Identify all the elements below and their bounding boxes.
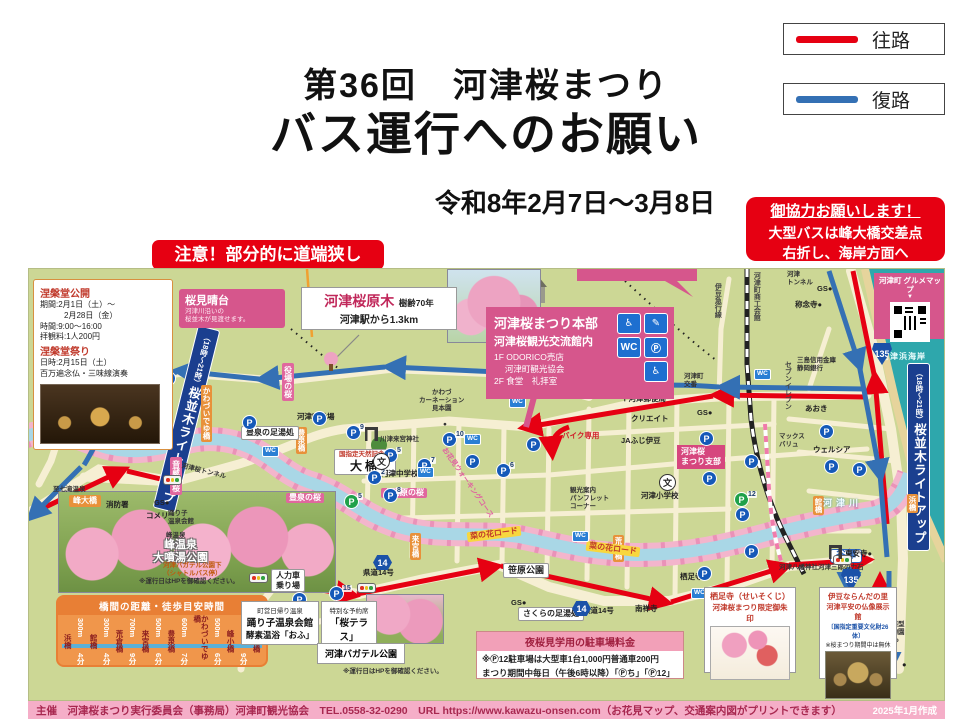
cooperation-notice-line3: 右折し、海岸方面へ (746, 243, 945, 263)
terrace-line1: 特別な予約席 (326, 605, 372, 615)
naranda-box: 伊豆ならんだの里 河津平安の仏像展示館 〔国指定重要文化財26体〕 ※桜まつり期… (819, 587, 897, 679)
nehando-info-box: 涅槃堂公開 期間:2月1日（土）～ 2月28日（金） 時間:9:00～16:00… (33, 279, 173, 450)
odoriko-onsen-box: 町営日帰り温泉 踊り子温泉会館 酵素温浴「おふ」 (241, 601, 319, 645)
map-label: （18時～21時）桜並木ライトアップ (907, 363, 930, 551)
map-label: ウェルシア (813, 445, 851, 454)
seisokuji-line2: 河津桜まつり限定御朱印 (709, 602, 791, 624)
map-label: 南禅寺 (635, 604, 658, 613)
map-label: GS● (154, 498, 169, 507)
map-label: GS● (511, 598, 526, 607)
narrow-road-notice: 注意！部分的に道端狭し (152, 240, 384, 270)
parking-marker: P (819, 424, 834, 439)
map-label: 河津 トンネル (787, 271, 813, 287)
toilet-marker: WC (262, 446, 279, 457)
clipped-callout (577, 269, 697, 297)
terrace-line2: 「桜テラス」 (326, 615, 372, 643)
nehando-open-body: 期間:2月1日（土）～ 2月28日（金） 時間:9:00～16:00 拝観料:1… (40, 300, 166, 343)
map-label: 豊泉の桜 (286, 493, 324, 503)
traffic-light-icon (249, 573, 268, 583)
fee-box-line1: ※Ⓟ12駐車場は大型車1台1,000円普通車200円 (477, 651, 683, 665)
bridge-table-cell: 峰小橋 (227, 615, 235, 667)
bridge-table-cell: 300m4分 (103, 615, 111, 667)
bridge-table-cell: 300m4分 (77, 615, 85, 667)
parking-marker: P (699, 431, 714, 446)
map-label: 来宮橋 (410, 533, 421, 560)
naranda-line2: 河津平安の仏像展示館 (824, 602, 892, 622)
traffic-light-icon (163, 475, 182, 485)
genboku-name: 河津桜原木 (324, 293, 394, 309)
map-label: ※運行日はHPを御確認ください。 (343, 668, 443, 676)
parking-marker: P15 (329, 586, 344, 601)
facility-icon: ♿ (617, 313, 641, 334)
facility-icon: Ⓟ (644, 337, 668, 358)
night-parking-fee-box: 夜桜見学用の駐車場料金 ※Ⓟ12駐車場は大型車1台1,000円普通車200円 ま… (476, 631, 684, 679)
parking-marker: P2 (367, 470, 382, 485)
map-label: 消防署 (106, 500, 129, 509)
map-label: ● (443, 421, 447, 429)
naranda-line1: 伊豆ならんだの里 (824, 591, 892, 602)
map-label: ● (902, 660, 907, 669)
nehando-open-title: 涅槃堂公開 (40, 285, 166, 300)
map-label: 笹原公園 (503, 563, 549, 578)
parking-marker: P10 (442, 432, 457, 447)
map-label: 河津バガテル公園下 （シャトルバス停） (163, 562, 222, 578)
bridge-table-cell: 浜橋 (64, 615, 72, 667)
toilet-marker: WC (417, 467, 434, 478)
map-label: バイク専用 (562, 431, 599, 440)
parking-marker: P12 (734, 492, 749, 507)
organizer-credit: 主催 河津桜まつり実行委員会（事務局）河津町観光協会 TEL.0558-32-0… (36, 703, 842, 718)
map-label: 踊り子 温泉会館 (168, 510, 194, 526)
bridge-table-cell: 来宮橋 (141, 615, 149, 667)
legend-return-label: 復路 (872, 86, 910, 113)
map-label: かわづいでゆ橋 (201, 385, 212, 442)
nehando-festival-title: 涅槃堂祭り (40, 343, 166, 358)
traffic-light-icon (357, 583, 376, 593)
cooperation-notice-line2: 大型バスは峰大橋交差点 (746, 223, 945, 243)
parking-marker: P (702, 471, 717, 486)
odoriko-line3: 酵素温浴「おふ」 (246, 629, 314, 641)
map-label: 峰大橋 (69, 495, 101, 507)
bridge-table-cell: かわづいでゆ橋 (193, 615, 208, 667)
genboku-sub: 河津駅から1.3km (306, 311, 452, 326)
toilet-marker: WC (754, 369, 771, 380)
facility-icon: ✎ (644, 313, 668, 334)
bagatel-park-label: 河津バガテル公園 (317, 643, 405, 664)
parking-marker: P6 (496, 463, 511, 478)
map-label: 浜橋 (907, 494, 918, 513)
miharashi-sub: 河津川沿いの 桜並木が見渡せます。 (185, 308, 279, 325)
cooperation-notice-line1: 御協力お願いします！ (746, 201, 945, 223)
odoriko-line1: 町営日帰り温泉 (246, 605, 314, 615)
bridge-table-cells: 浜橋 300m4分 館橋 300m4分 荒倉橋 700m9分 来宮橋 500m (58, 615, 266, 667)
bridge-table-cell: 館橋 (90, 615, 98, 667)
bridge-table-cell: 500m6分 (214, 615, 222, 667)
facility-icon: WC (617, 337, 641, 358)
map-label: GS● (817, 284, 832, 293)
seisokuji-line1: 栖足寺（せいそくじ） (709, 591, 791, 602)
map-label: 至七滝温泉 (53, 486, 86, 494)
gourmet-map-title: 河津町 グルメマップ (877, 276, 943, 295)
map-label: コメリ (146, 511, 169, 520)
return-line-icon (796, 96, 858, 103)
parking-marker: P (312, 411, 327, 426)
toilet-marker: WC (464, 434, 481, 445)
map-label: 役場の桜 (282, 363, 294, 401)
map-label: 河津町商工会館 (752, 272, 760, 321)
festival-period: 令和8年2月7日～3月8日 (340, 183, 810, 220)
odoriko-line2: 踊り子温泉会館 (246, 615, 314, 629)
torii-icon (829, 545, 842, 559)
genboku-box: 河津桜原木 樹齢70年 河津駅から1.3km (301, 287, 457, 330)
facility-icon: ♿ (644, 361, 668, 382)
parking-marker: P (735, 507, 750, 522)
bridge-distance-table: 橋間の距離・徒歩目安時間 浜橋 300m4分 館橋 300m4分 荒倉橋 700… (56, 595, 268, 667)
made-date: 2025年1月作成 (873, 703, 937, 717)
legend-return: 復路 (783, 83, 945, 115)
parking-marker: P (697, 566, 712, 581)
map-label: クリエイト (631, 414, 669, 423)
map-label: 河津桜 まつり支部 (677, 445, 725, 469)
bridge-table-cell: 豊泉橋 (167, 615, 175, 667)
qr-code (890, 302, 930, 342)
parking-marker: P (526, 437, 541, 452)
map-label: 河津川 (823, 498, 862, 509)
map-label: かわづ カーネーション 見本園 (419, 389, 464, 412)
genboku-tree-icon (324, 352, 338, 371)
outbound-line-icon (796, 36, 858, 43)
naranda-line4: ※桜まつり期間中は無休 (824, 640, 892, 649)
fee-box-header: 夜桜見学用の駐車場料金 (477, 632, 683, 651)
fee-box-line2: まつり期間中毎日（午後6時以降）「Ⓟち」「Ⓟ12」 (477, 665, 683, 679)
map-label: 観光案内 パンフレット コーナー (570, 487, 609, 510)
genboku-age: 樹齢70年 (399, 298, 434, 308)
festival-hq-box: 河津桜まつり本部 河津桜観光交流館内 1F ODORICO売店 河津町観光協会 … (486, 307, 674, 399)
hq-facility-icons: ♿✎WCⓅ♿ (612, 313, 668, 382)
map-label: セブンイレブン (783, 361, 791, 410)
parking-marker: P8 (383, 488, 398, 503)
sakura-terrace-box: 特別な予約席 「桜テラス」 (321, 601, 377, 647)
parking-marker: P (744, 544, 759, 559)
map-label: 三島信用金庫 静岡銀行 (797, 357, 836, 373)
route-map: 涅槃堂公開 期間:2月1日（土）～ 2月28日（金） 時間:9:00～16:00… (28, 268, 945, 701)
miharashi-title: 桜見晴台 (185, 292, 279, 308)
seisokuji-photo (710, 626, 790, 680)
bridge-table-title: 橋間の距離・徒歩目安時間 (58, 597, 266, 615)
parking-marker: P (744, 454, 759, 469)
map-label: 人力車 乗り場 (271, 569, 305, 592)
map-label: JAふじ伊豆 (621, 436, 661, 445)
map-label: 河津小学校 (641, 491, 679, 500)
gourmet-map-box: 河津町 グルメマップ ▼ (874, 273, 945, 339)
map-label: 河津町 交番 (684, 373, 704, 389)
seisokuji-box: 栖足寺（せいそくじ） 河津桜まつり限定御朱印 (704, 587, 796, 673)
cooperation-notice: 御協力お願いします！ 大型バスは峰大橋交差点 右折し、海岸方面へ (746, 197, 945, 261)
map-label: GS● (697, 408, 712, 417)
bridge-table-cell: 荒倉橋 (116, 615, 124, 667)
bridge-table-cell: 700m9分 (128, 615, 136, 667)
legend-outbound-label: 往路 (872, 26, 910, 53)
map-label: あおき (805, 404, 828, 413)
parking-marker: P (242, 415, 257, 430)
torii-icon (365, 427, 378, 441)
map-label: 峰温泉 大噴湯公園 (153, 539, 208, 564)
chevron-down-icon: ▼ (877, 295, 943, 300)
school-icon: 文 (373, 453, 390, 470)
parking-marker: P (824, 459, 839, 474)
miharashi-callout: 桜見晴台 河津川沿いの 桜並木が見渡せます。 (179, 289, 285, 328)
map-label: 称念寺● (795, 300, 822, 309)
flyer-page: 第36回 河津桜まつり バス運行へのお願い 令和8年2月7日～3月8日 往路 復… (0, 0, 972, 720)
map-label: マックス バリュ (779, 433, 805, 449)
terrace-photo (366, 594, 444, 644)
legend-outbound: 往路 (783, 23, 945, 55)
naranda-line3: 〔国指定重要文化財26体〕 (824, 622, 892, 640)
bridge-table-cell: 500m6分 (154, 615, 162, 667)
map-label: ※運行日はHPを御確認ください。 (139, 578, 239, 586)
map-label: 伊豆急行線 (713, 283, 721, 318)
footer-bar: 主催 河津桜まつり実行委員会（事務局）河津町観光協会 TEL.0558-32-0… (28, 701, 945, 719)
parking-marker: P9 (346, 425, 361, 440)
nehando-photo (40, 384, 160, 444)
bridge-table-cell: 600m7分 (180, 615, 188, 667)
parking-marker: P (465, 454, 480, 469)
toilet-marker: WC (572, 531, 589, 542)
naranda-photo (825, 651, 891, 699)
map-label: 川津来宮神社 (380, 436, 419, 444)
parking-marker: P5 (344, 494, 359, 509)
nehando-festival-body: 日時:2月15日（土） 百万遍念仏・三味線演奏 (40, 358, 166, 380)
school-icon: 文 (659, 474, 676, 491)
parking-marker: P (852, 462, 867, 477)
map-label: 河津中学校 (381, 469, 419, 478)
